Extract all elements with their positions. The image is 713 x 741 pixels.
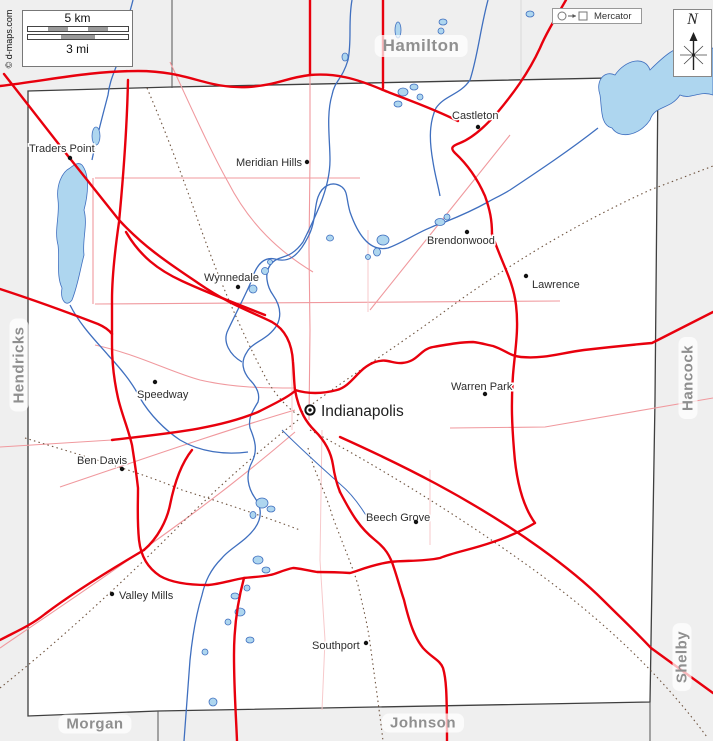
city-label: Wynnedale	[204, 272, 259, 284]
city-label: Castleton	[452, 110, 498, 122]
city-label: Brendonwood	[427, 235, 495, 247]
city-dot	[305, 160, 309, 164]
county-label-shelby: Shelby	[673, 623, 692, 691]
city-label: Ben Davis	[77, 455, 128, 467]
city-dot	[120, 467, 124, 471]
city-label: Speedway	[137, 389, 189, 401]
scale-legend: 5 km 3 mi	[22, 10, 133, 67]
city-label: Southport	[312, 640, 360, 652]
capital-dot	[308, 408, 311, 411]
city-dot	[476, 125, 480, 129]
county-label-johnson: Johnson	[382, 714, 464, 733]
city-label: Valley Mills	[119, 590, 174, 602]
city-dot	[110, 592, 114, 596]
city-dot	[364, 641, 368, 645]
city-label: Beech Grove	[366, 512, 430, 524]
city-label: Traders Point	[29, 143, 95, 155]
projection-name: Mercator	[594, 11, 631, 22]
county-label-hendricks: Hendricks	[10, 318, 29, 411]
projection-icon	[557, 10, 591, 22]
county-label-morgan: Morgan	[58, 715, 131, 734]
scale-mi-bar	[27, 34, 129, 40]
capital-label: Indianapolis	[321, 403, 404, 420]
compass-rose-icon	[674, 29, 713, 75]
city-dot	[414, 520, 418, 524]
map-canvas: Traders PointMeridian HillsCastletonBren…	[0, 0, 713, 741]
compass: N	[673, 9, 712, 77]
city-dot	[236, 285, 240, 289]
county-label-hancock: Hancock	[679, 337, 698, 419]
compass-north-label: N	[674, 10, 711, 29]
city-label: Lawrence	[532, 279, 580, 291]
scale-km-label: 5 km	[23, 11, 132, 25]
city-dot	[153, 380, 157, 384]
city-label: Warren Park	[451, 381, 513, 393]
county-label-hamilton: Hamilton	[375, 35, 468, 57]
scale-mi-label: 3 mi	[23, 42, 132, 56]
city-dot	[465, 230, 469, 234]
scale-km-bar	[27, 26, 129, 32]
city-dot	[68, 156, 72, 160]
attribution-text: © d-maps.com	[4, 4, 16, 74]
map-stage: Traders PointMeridian HillsCastletonBren…	[0, 0, 713, 741]
city-dot	[483, 392, 487, 396]
city-dot	[524, 274, 528, 278]
projection-legend: Mercator	[552, 8, 642, 24]
city-label: Meridian Hills	[236, 157, 303, 169]
